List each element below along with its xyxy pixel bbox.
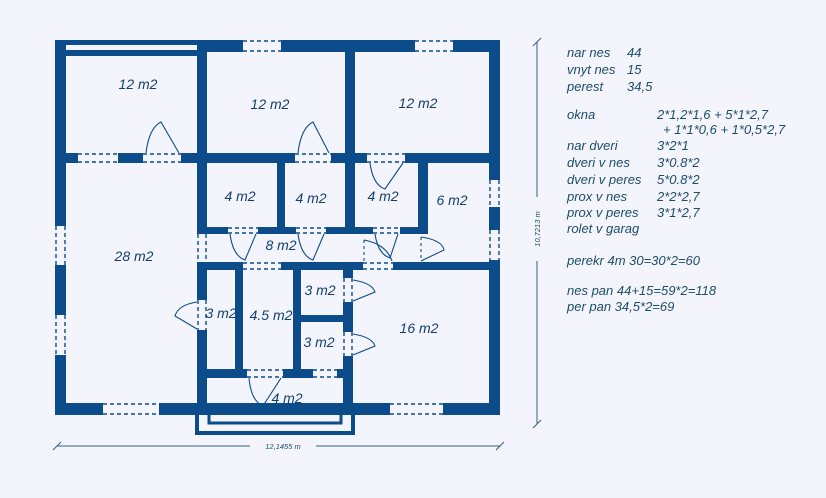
- door-swing-room-3-left: [175, 302, 197, 329]
- door-swing-corridor-east: [421, 237, 444, 261]
- passage-opening: [197, 234, 207, 262]
- door-opening: [228, 227, 258, 234]
- wall-between-12s: [345, 40, 355, 163]
- room-label-6: 6 m2: [436, 192, 467, 208]
- room-label-16: 16 m2: [400, 320, 439, 336]
- room-label-4c: 4 m2: [367, 188, 398, 204]
- passage-opening: [243, 262, 281, 270]
- door-opening: [143, 153, 181, 163]
- note-okna-value-2: + 1*1*0,6 + 1*0,5*2,7: [663, 122, 786, 137]
- door-opening: [343, 278, 353, 302]
- door-opening: [373, 227, 400, 234]
- room-label-corridor: 8 m2: [265, 237, 296, 253]
- door-swing-corridor-4b: [298, 234, 324, 260]
- wall-garage-right: [197, 40, 207, 234]
- wall-right: [489, 40, 500, 412]
- door-swing-room-top-middle: [298, 122, 329, 153]
- note-area-0-label: nar nes: [567, 45, 611, 60]
- door-opening: [343, 332, 353, 356]
- note-dveri-v-peres-label: dveri v peres: [567, 172, 642, 187]
- wall-4b-4c: [345, 163, 355, 234]
- dimension-height-label: 10,7213 m: [533, 211, 542, 246]
- note-calc-perekr: perekr 4m 30=30*2=60: [566, 253, 701, 268]
- room-label-garage: 12 m2: [119, 76, 158, 92]
- room-label-4a: 4 m2: [224, 188, 255, 204]
- door-opening: [363, 262, 393, 270]
- note-prox-v-nes-value: 2*2*2,7: [656, 189, 700, 204]
- door-swing-room-3-top-right: [353, 280, 375, 301]
- window-opening: [243, 40, 281, 52]
- wall-3tr-3br: [293, 315, 353, 322]
- note-area-0-value: 44: [627, 45, 641, 60]
- porch: [197, 415, 353, 433]
- wall-mid-horizontal: [55, 153, 500, 163]
- note-area-2-value: 34,5: [627, 79, 653, 94]
- door-swing-room-16: [364, 240, 392, 261]
- window-opening: [415, 40, 453, 52]
- note-prox-v-peres-value: 3*1*2,7: [657, 205, 700, 220]
- note-dveri-v-peres-value: 5*0.8*2: [657, 172, 700, 187]
- window-opening: [103, 403, 159, 415]
- note-dveri-v-nes-label: dveri v nes: [567, 155, 630, 170]
- wall-garage-top-inner: [66, 50, 207, 56]
- door-swing-room-3-bottom-right: [353, 334, 375, 355]
- window-opening: [489, 180, 500, 207]
- note-prox-v-peres-label: prox v peres: [566, 205, 639, 220]
- room-label-top-middle: 12 m2: [251, 96, 290, 112]
- note-nar-dveri-label: nar dveri: [567, 138, 619, 153]
- wall-garage-top-outer: [55, 40, 207, 45]
- note-area-1-label: vnyt nes: [567, 62, 616, 77]
- door-swing-room-4c: [370, 163, 403, 189]
- window-opening: [55, 315, 66, 355]
- wall-3left-left: [197, 262, 207, 403]
- note-calc-per-pan: per pan 34,5*2=69: [566, 299, 674, 314]
- note-rolet-label: rolet v garag: [567, 221, 640, 236]
- floor-plan-drawing: 12 m2 12 m2 12 m2 4 m2 4 m2 4 m2 6 m2 8 …: [0, 0, 826, 498]
- room-label-vestibule: 4 m2: [271, 390, 302, 406]
- notes-panel: nar nes 44 vnyt nes 15 perest 34,5 okna …: [566, 45, 786, 314]
- note-okna-value: 2*1,2*1,6 + 5*1*2,7: [656, 107, 769, 122]
- door-swing-corridor-4a: [230, 234, 256, 260]
- wall-4a-4b: [277, 163, 285, 234]
- dimension-width-label: 12,1455 m: [265, 442, 300, 451]
- dimension-width: 12,1455 m: [53, 440, 504, 451]
- room-label-3-bottom-right: 3 m2: [303, 334, 334, 350]
- room-label-top-right: 12 m2: [399, 95, 438, 111]
- note-okna-label: okna: [567, 107, 595, 122]
- room-label-3-top-right: 3 m2: [304, 282, 335, 298]
- note-nar-dveri-value: 3*2*1: [657, 138, 689, 153]
- note-dveri-v-nes-value: 3*0.8*2: [657, 155, 700, 170]
- window-opening: [313, 369, 337, 378]
- room-label-3-left: 3 m2: [205, 305, 236, 321]
- room-label-4-5: 4.5 m2: [250, 307, 293, 323]
- room-label-living: 28 m2: [114, 248, 154, 264]
- note-area-2-label: perest: [566, 79, 605, 94]
- door-swing-corridor-4c: [375, 234, 398, 258]
- room-label-4b: 4 m2: [295, 190, 326, 206]
- dimension-height: 10,7213 m: [531, 38, 543, 428]
- wall-4c-6: [418, 163, 428, 234]
- window-opening: [489, 230, 500, 260]
- door-opening: [247, 369, 283, 378]
- note-calc-nes-pan: nes pan 44+15=59*2=118: [567, 283, 717, 298]
- plan-canvas: 12 m2 12 m2 12 m2 4 m2 4 m2 4 m2 6 m2 8 …: [0, 0, 826, 498]
- door-swing-garage: [146, 122, 179, 153]
- room-labels: 12 m2 12 m2 12 m2 4 m2 4 m2 4 m2 6 m2 8 …: [114, 76, 468, 406]
- porch-inner-step: [209, 415, 341, 423]
- window-opening: [78, 153, 118, 163]
- note-prox-v-nes-label: prox v nes: [566, 189, 627, 204]
- door-opening: [295, 153, 331, 163]
- door-opening: [296, 227, 326, 234]
- note-area-1-value: 15: [627, 62, 642, 77]
- door-opening: [367, 153, 405, 163]
- window-opening: [390, 403, 443, 415]
- window-opening: [55, 226, 66, 265]
